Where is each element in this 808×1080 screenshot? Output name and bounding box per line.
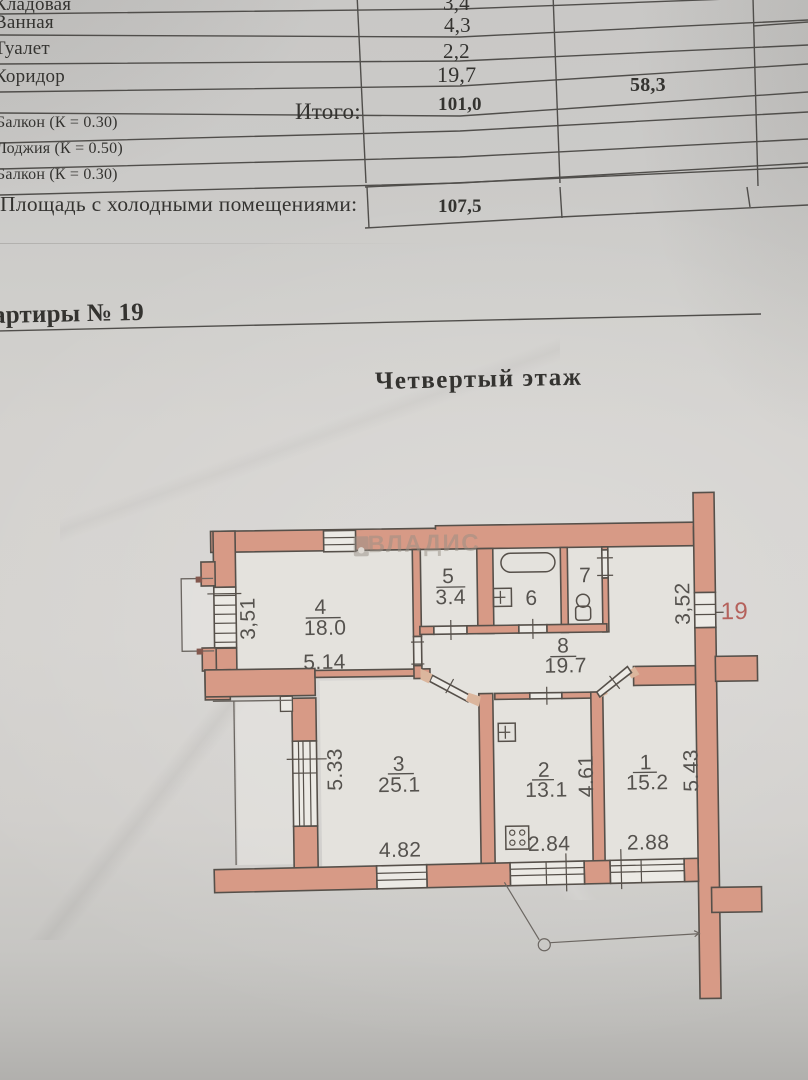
svg-text:2.88: 2.88 [627, 831, 670, 855]
svg-text:6: 6 [525, 587, 537, 610]
svg-text:5.14: 5.14 [303, 651, 346, 675]
svg-text:7: 7 [579, 564, 591, 587]
svg-text:19.7: 19.7 [544, 654, 587, 678]
svg-text:2.84: 2.84 [528, 832, 571, 856]
svg-text:5: 5 [442, 565, 454, 588]
svg-text:5.33: 5.33 [324, 748, 348, 791]
svg-text:25.1: 25.1 [378, 773, 421, 797]
svg-text:13.1: 13.1 [525, 778, 568, 802]
svg-text:3: 3 [393, 753, 405, 776]
svg-text:3,52: 3,52 [671, 582, 695, 625]
svg-text:18.0: 18.0 [304, 617, 347, 641]
svg-text:5.43: 5.43 [680, 749, 704, 792]
svg-text:15.2: 15.2 [626, 771, 669, 795]
svg-text:3,51: 3,51 [236, 597, 260, 640]
svg-text:ВЛАДИС: ВЛАДИС [367, 530, 480, 559]
svg-text:3.4: 3.4 [435, 586, 466, 609]
svg-text:4.82: 4.82 [379, 838, 422, 862]
svg-text:19: 19 [720, 598, 748, 625]
svg-text:4: 4 [314, 596, 326, 619]
svg-text:4.61: 4.61 [575, 755, 599, 798]
